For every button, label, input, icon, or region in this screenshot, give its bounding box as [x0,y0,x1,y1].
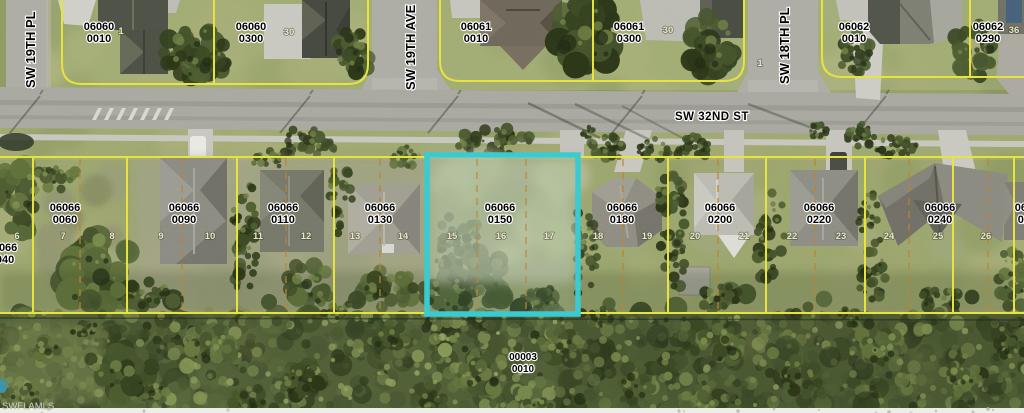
svg-text:0040: 0040 [0,254,14,266]
svg-text:SW 19TH PL: SW 19TH PL [23,11,38,88]
svg-text:SW 19TH AVE: SW 19TH AVE [403,4,418,90]
svg-text:7: 7 [60,231,65,242]
svg-text:36: 36 [1009,25,1020,36]
svg-text:0110: 0110 [271,214,295,226]
svg-text:06062: 06062 [973,21,1004,33]
svg-text:0200: 0200 [708,214,732,226]
svg-text:1: 1 [757,58,763,69]
svg-text:06066: 06066 [925,202,956,214]
svg-text:0300: 0300 [617,33,641,45]
svg-text:25: 25 [933,231,944,242]
svg-text:0090: 0090 [172,214,196,226]
svg-text:06060: 06060 [236,21,267,33]
svg-text:06062: 06062 [839,21,870,33]
svg-text:06066: 06066 [607,202,638,214]
svg-text:0180: 0180 [610,214,634,226]
svg-text:1: 1 [118,26,124,37]
svg-text:SW 18TH PL: SW 18TH PL [777,7,792,84]
svg-text:0010: 0010 [464,33,488,45]
svg-text:06066: 06066 [0,242,17,254]
svg-text:21: 21 [739,231,750,242]
svg-text:06066: 06066 [705,202,736,214]
svg-text:10: 10 [205,231,216,242]
svg-text:15: 15 [447,231,458,242]
svg-text:0010: 0010 [512,364,535,375]
svg-text:0290: 0290 [976,33,1000,45]
svg-text:0220: 0220 [807,214,831,226]
svg-text:19: 19 [642,231,653,242]
svg-text:06060: 06060 [84,21,115,33]
svg-text:06066: 06066 [804,202,835,214]
svg-text:20: 20 [690,231,701,242]
svg-text:0260: 0260 [1018,214,1024,226]
svg-text:13: 13 [350,231,361,242]
svg-text:06066: 06066 [485,202,516,214]
svg-text:SW 32ND ST: SW 32ND ST [675,111,749,123]
svg-text:17: 17 [544,231,555,242]
svg-text:24: 24 [884,231,895,242]
svg-text:0300: 0300 [239,33,263,45]
svg-text:06061: 06061 [614,21,645,33]
svg-text:0240: 0240 [928,214,952,226]
svg-text:23: 23 [836,231,847,242]
svg-text:30: 30 [284,27,295,38]
svg-text:22: 22 [787,231,798,242]
svg-text:0150: 0150 [488,214,512,226]
svg-text:06066: 06066 [1015,202,1024,214]
svg-text:06061: 06061 [461,21,492,33]
svg-text:18: 18 [593,231,604,242]
svg-text:0010: 0010 [87,33,111,45]
svg-text:9: 9 [158,231,163,242]
svg-text:30: 30 [663,25,674,36]
svg-text:16: 16 [496,231,507,242]
svg-text:26: 26 [981,231,992,242]
svg-text:06066: 06066 [365,202,396,214]
svg-text:06066: 06066 [169,202,200,214]
svg-text:6: 6 [14,231,19,242]
svg-text:00003: 00003 [509,352,537,363]
svg-text:06066: 06066 [268,202,299,214]
svg-text:0130: 0130 [368,214,392,226]
svg-text:06066: 06066 [50,202,81,214]
svg-text:12: 12 [301,231,312,242]
svg-text:SWFLAMLS: SWFLAMLS [2,401,54,412]
svg-text:0010: 0010 [842,33,866,45]
svg-text:8: 8 [109,231,114,242]
svg-text:14: 14 [398,231,409,242]
svg-text:0060: 0060 [53,214,77,226]
svg-text:11: 11 [253,231,264,242]
